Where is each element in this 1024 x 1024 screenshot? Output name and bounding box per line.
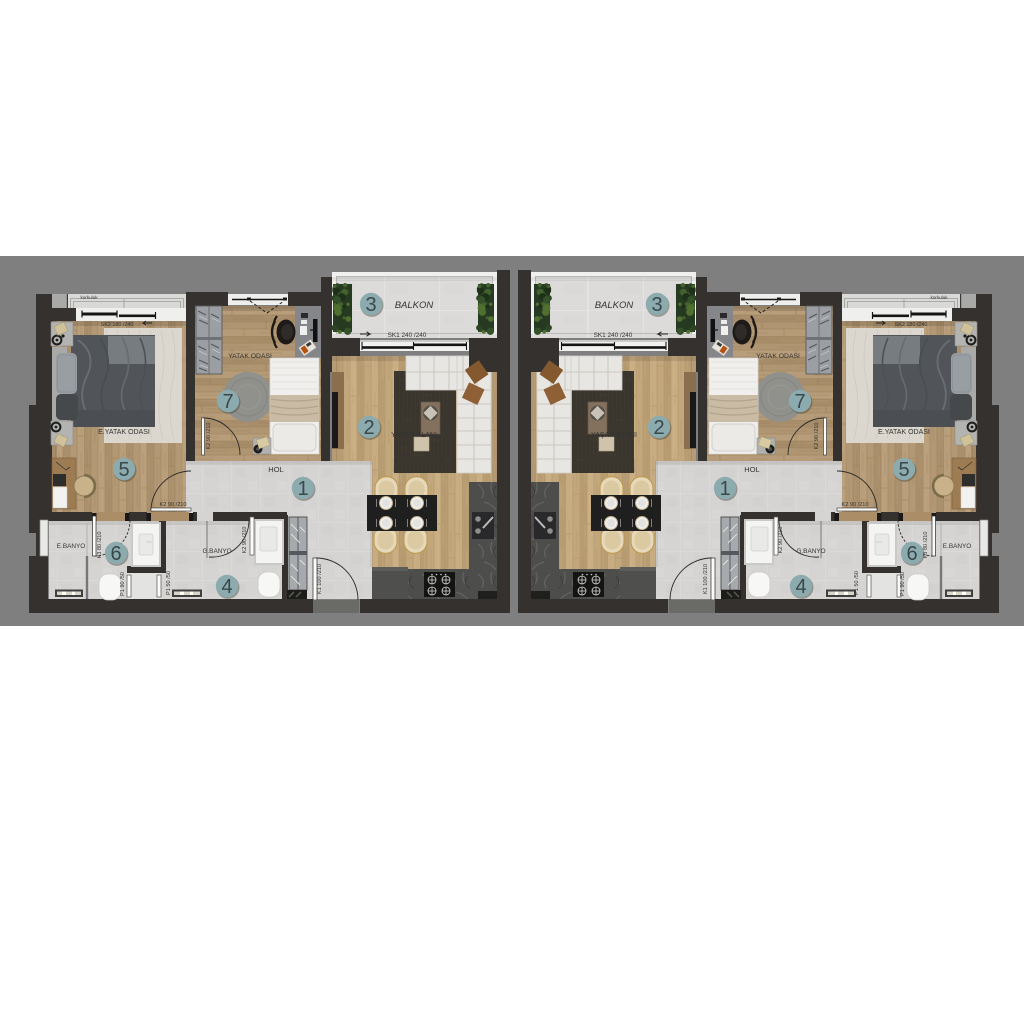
svg-text:P1 90 /50: P1 90 /50 [900,572,906,596]
svg-text:G.BANYO: G.BANYO [202,548,231,555]
svg-text:P1 50 /50: P1 50 /50 [166,571,172,595]
svg-text:SK1 240 /240: SK1 240 /240 [594,332,633,339]
svg-text:P1 90 /50: P1 90 /50 [120,572,126,596]
svg-text:P1 50 /50: P1 50 /50 [854,571,860,595]
svg-text:HOL: HOL [268,465,283,474]
svg-text:E.BANYO: E.BANYO [943,543,971,550]
svg-text:SK2 180 /240: SK2 180 /240 [101,322,134,328]
svg-text:K2 90 /210: K2 90 /210 [841,502,868,508]
svg-text:7: 7 [222,391,233,413]
svg-text:G.BANYO: G.BANYO [796,548,825,555]
svg-text:K2 90 /210: K2 90 /210 [159,502,186,508]
svg-text:E.YATAK ODASI: E.YATAK ODASI [98,429,150,436]
svg-text:2: 2 [653,417,664,439]
svg-text:1: 1 [719,478,730,500]
svg-text:HOL: HOL [744,465,759,474]
svg-text:YATAK ODASI: YATAK ODASI [756,353,800,360]
svg-text:5: 5 [898,459,909,481]
svg-text:1: 1 [297,478,308,500]
svg-text:BALKON: BALKON [395,300,434,311]
svg-text:2: 2 [363,417,374,439]
svg-text:6: 6 [110,543,121,565]
svg-text:3: 3 [651,294,662,316]
svg-text:K3 80 /210: K3 80 /210 [97,531,103,558]
svg-text:E.YATAK ODASI: E.YATAK ODASI [878,429,930,436]
svg-text:K2 90 /210: K2 90 /210 [778,526,784,553]
svg-text:7: 7 [794,391,805,413]
svg-text:YAŞAM ALANI: YAŞAM ALANI [391,432,437,439]
svg-text:BALKON: BALKON [595,300,634,311]
svg-text:korkuluk: korkuluk [930,295,948,300]
svg-text:SK2 180 /240: SK2 180 /240 [895,322,928,328]
svg-text:korkuluk: korkuluk [80,295,98,300]
svg-text:K2 90 /210: K2 90 /210 [206,422,212,449]
svg-text:5: 5 [118,459,129,481]
svg-text:YAŞAM ALANI: YAŞAM ALANI [591,432,637,439]
svg-text:4: 4 [221,576,232,598]
svg-text:K2 90 /210: K2 90 /210 [242,526,248,553]
svg-text:K1 100 /210: K1 100 /210 [317,564,323,594]
svg-text:K2 90 /210: K2 90 /210 [814,422,820,449]
svg-text:3: 3 [365,294,376,316]
svg-text:SK1 240 /240: SK1 240 /240 [388,332,427,339]
svg-text:E.BANYO: E.BANYO [57,543,85,550]
svg-text:YATAK ODASI: YATAK ODASI [228,353,272,360]
svg-text:4: 4 [795,576,806,598]
svg-text:K1 100 /210: K1 100 /210 [703,564,709,594]
svg-text:6: 6 [906,543,917,565]
